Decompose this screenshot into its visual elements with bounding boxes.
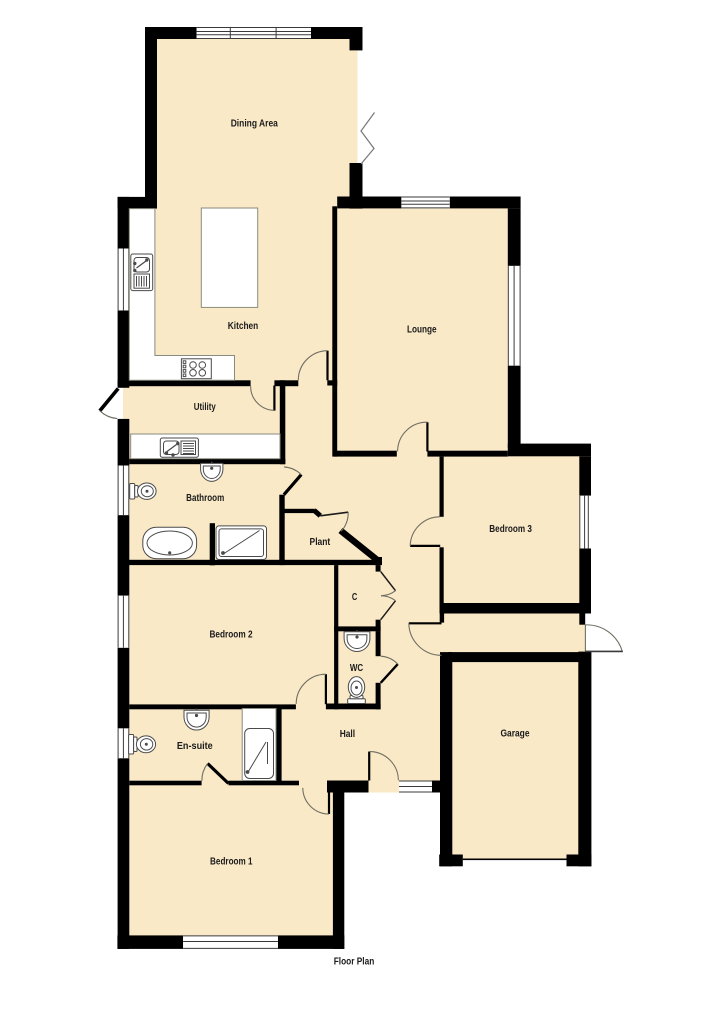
svg-text:Bedroom 3: Bedroom 3	[489, 524, 532, 535]
svg-text:Dining Area: Dining Area	[231, 119, 278, 130]
svg-text:C: C	[352, 592, 358, 603]
svg-text:Garage: Garage	[500, 729, 529, 740]
svg-text:Hall: Hall	[340, 729, 356, 740]
svg-text:WC: WC	[350, 663, 364, 674]
svg-text:Plant: Plant	[310, 537, 331, 548]
svg-text:Lounge: Lounge	[407, 325, 437, 336]
svg-text:Bedroom 1: Bedroom 1	[210, 857, 253, 868]
svg-text:Bathroom: Bathroom	[186, 493, 224, 504]
svg-text:Floor Plan: Floor Plan	[334, 956, 375, 967]
svg-text:Bedroom 2: Bedroom 2	[209, 630, 252, 641]
svg-text:Utility: Utility	[194, 402, 216, 413]
svg-text:Kitchen: Kitchen	[228, 321, 259, 332]
svg-text:En-suite: En-suite	[177, 741, 213, 752]
